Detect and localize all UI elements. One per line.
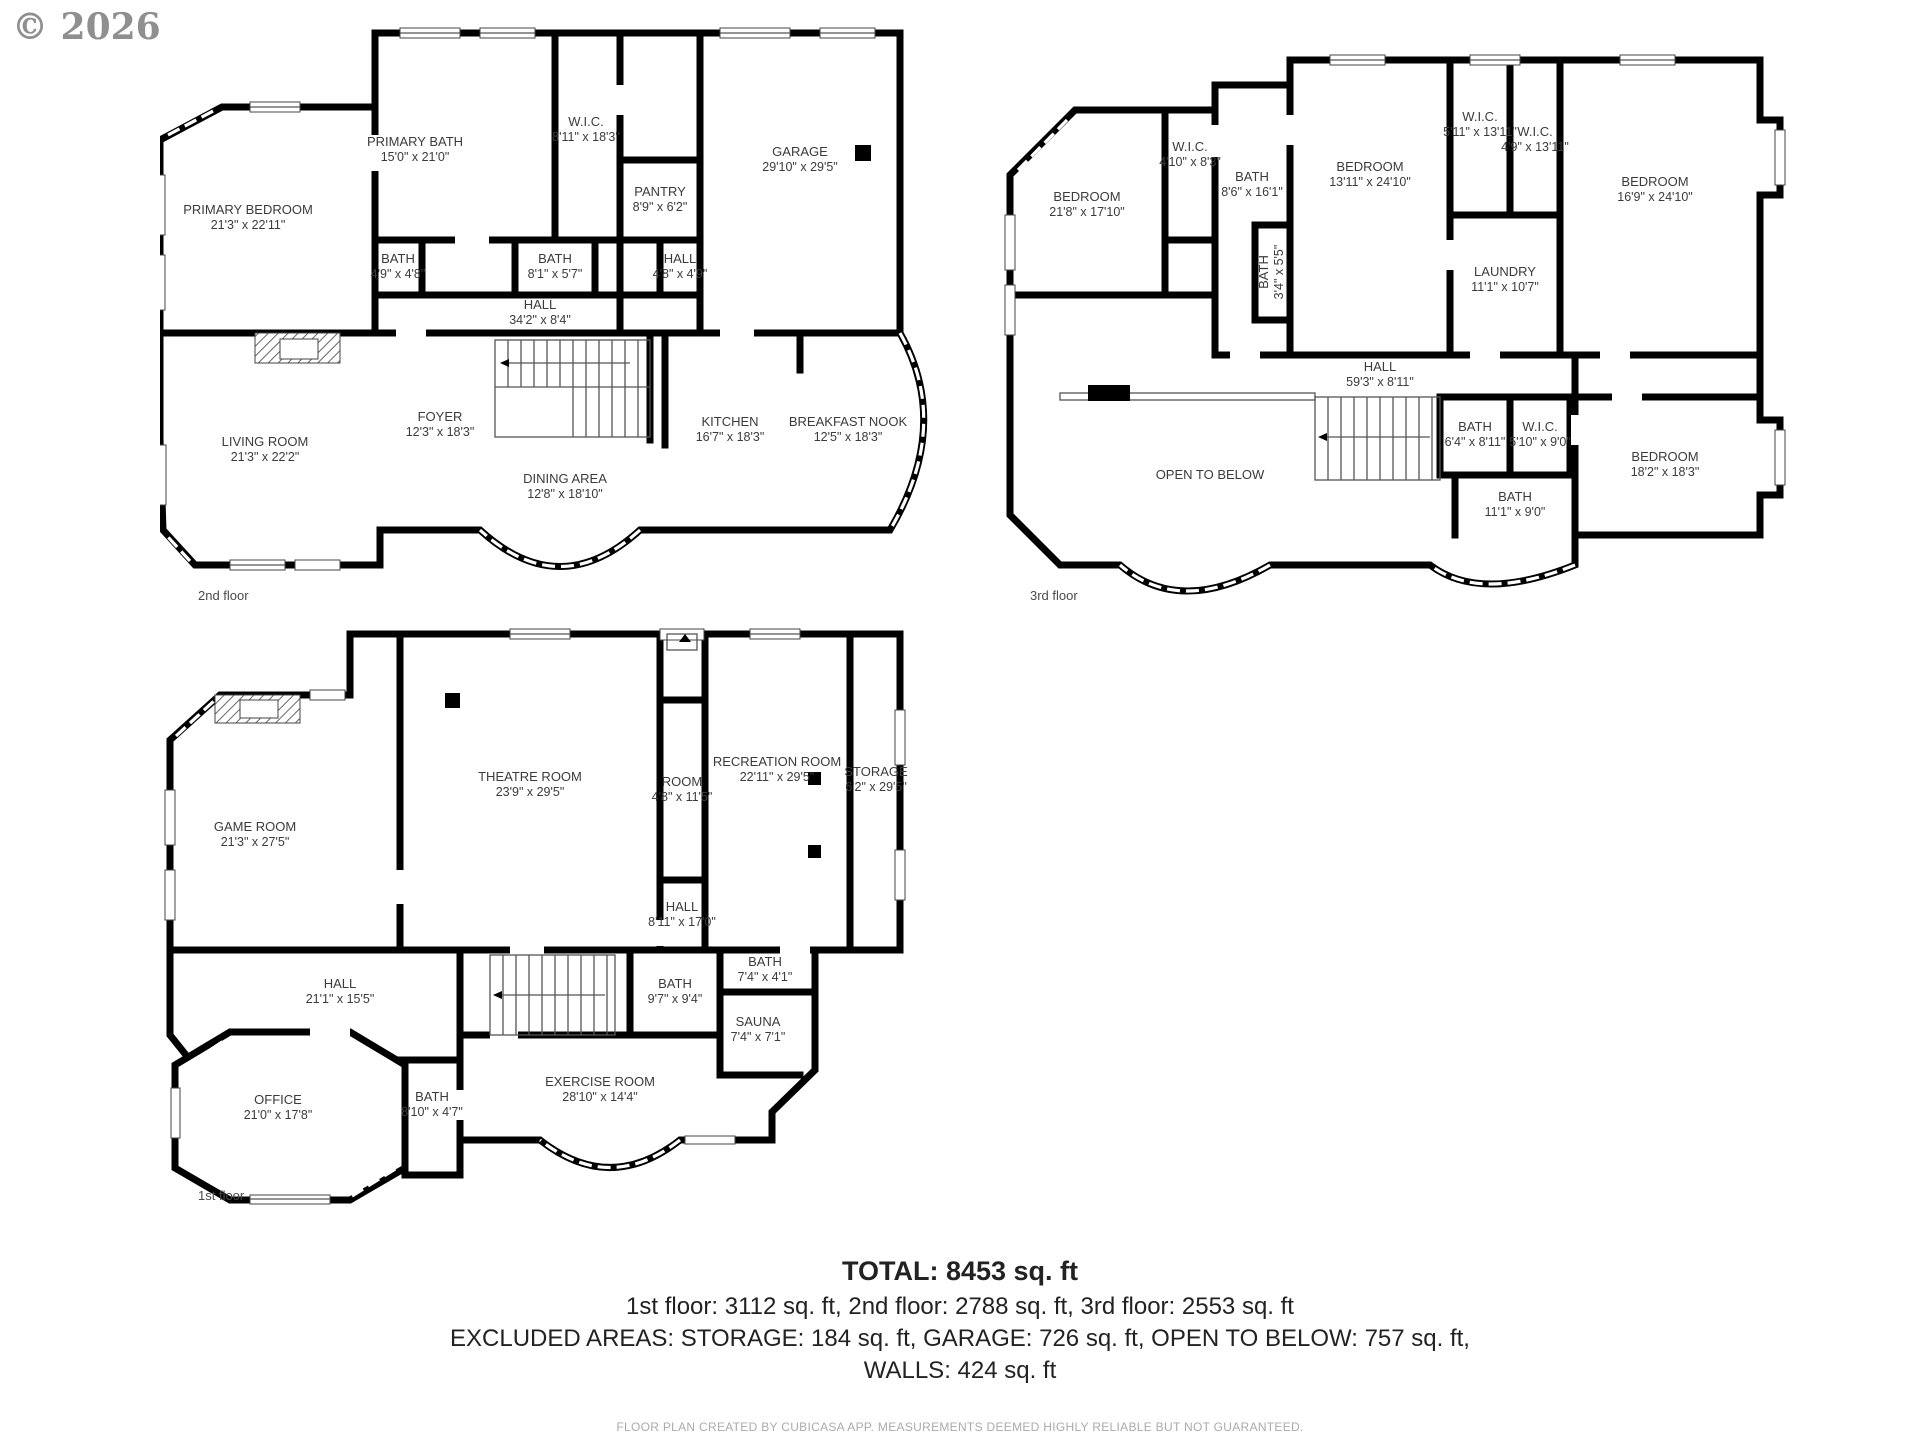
room-label: W.I.C.4'10" x 8'3" xyxy=(1159,139,1221,171)
room-label: GARAGE29'10" x 29'5" xyxy=(762,144,838,176)
room-label: THEATRE ROOM23'9" x 29'5" xyxy=(478,769,582,801)
room-label: BATH4'9" x 4'8" xyxy=(371,251,426,283)
room-label: GAME ROOM21'3" x 27'5" xyxy=(214,819,296,851)
room-label: RECREATION ROOM22'11" x 29'5" xyxy=(713,754,841,786)
room-label: BATH8'6" x 16'1" xyxy=(1221,169,1283,201)
room-label: PRIMARY BEDROOM21'3" x 22'11" xyxy=(183,202,313,234)
room-label: BATH8'10" x 4'7" xyxy=(401,1089,463,1121)
room-label: LAUNDRY11'1" x 10'7" xyxy=(1471,264,1539,296)
room-label: HALL59'3" x 8'11" xyxy=(1346,359,1414,391)
floor-plan-1st: GAME ROOM21'3" x 27'5" THEATRE ROOM23'9"… xyxy=(160,620,960,1220)
fireplace-icon xyxy=(255,333,340,363)
room-label: HALL8'11" x 17'0" xyxy=(648,899,716,931)
column-icon xyxy=(808,845,821,858)
floor-areas-line: 1st floor: 3112 sq. ft, 2nd floor: 2788 … xyxy=(0,1293,1920,1321)
room-label: KITCHEN16'7" x 18'3" xyxy=(696,414,765,446)
column-icon xyxy=(445,693,460,708)
room-label: BATH11'1" x 9'0" xyxy=(1485,489,1546,521)
room-label: BREAKFAST NOOK12'5" x 18'3" xyxy=(789,414,907,446)
room-label: W.I.C.5'10" x 9'0" xyxy=(1509,419,1571,451)
copyright-watermark: © 2026 xyxy=(12,6,161,48)
floor-tag-3rd: 3rd floor xyxy=(1030,588,1078,603)
room-label: SAUNA7'4" x 7'1" xyxy=(731,1014,786,1046)
floor-plan-3rd: BEDROOM21'8" x 17'10" W.I.C.4'10" x 8'3"… xyxy=(1000,25,1790,615)
floor-tag-1st: 1st floor xyxy=(198,1188,244,1203)
room-label: BATH6'4" x 8'11" xyxy=(1445,419,1506,451)
room-label: DINING AREA12'8" x 18'10" xyxy=(523,471,607,503)
floor-plan-3rd-drawing xyxy=(1000,25,1790,615)
room-label: BEDROOM21'8" x 17'10" xyxy=(1049,189,1125,221)
room-label: HALL4'8" x 4'9" xyxy=(653,251,708,283)
floor-tag-2nd: 2nd floor xyxy=(198,588,249,603)
credit-line: FLOOR PLAN CREATED BY CUBICASA APP. MEAS… xyxy=(0,1420,1920,1434)
room-label: BATH3'4" x 5'5" xyxy=(1256,245,1288,300)
room-label: HALL34'2" x 8'4" xyxy=(509,297,571,329)
floor-plan-1st-drawing xyxy=(160,620,960,1220)
room-label: OPEN TO BELOW xyxy=(1156,467,1265,483)
room-label: W.I.C.4'9" x 13'11" xyxy=(1501,124,1569,156)
room-label: PRIMARY BATH15'0" x 21'0" xyxy=(367,134,463,166)
room-label: EXERCISE ROOM28'10" x 14'4" xyxy=(545,1074,655,1106)
room-label: BATH7'4" x 4'1" xyxy=(738,954,793,986)
room-label: PANTRY8'9" x 6'2" xyxy=(633,184,688,216)
room-label: BATH9'7" x 9'4" xyxy=(648,976,703,1008)
room-label: W.I.C.8'11" x 18'3" xyxy=(552,114,620,146)
room-label: BATH8'1" x 5'7" xyxy=(528,251,583,283)
room-label: HALL21'1" x 15'5" xyxy=(306,976,375,1008)
walls-area-line: WALLS: 424 sq. ft xyxy=(0,1357,1920,1385)
floor-plan-2nd: PRIMARY BEDROOM21'3" x 22'11" PRIMARY BA… xyxy=(160,25,940,615)
total-area-line: TOTAL: 8453 sq. ft xyxy=(0,1256,1920,1287)
fireplace-icon xyxy=(215,695,300,723)
room-label: BEDROOM18'2" x 18'3" xyxy=(1631,449,1700,481)
room-label: ROOM4'8" x 11'5" xyxy=(652,774,713,806)
room-label: LIVING ROOM21'3" x 22'2" xyxy=(222,434,309,466)
garage-post-icon xyxy=(855,145,871,161)
excluded-areas-line: EXCLUDED AREAS: STORAGE: 184 sq. ft, GAR… xyxy=(0,1325,1920,1353)
room-label: BEDROOM13'11" x 24'10" xyxy=(1329,159,1411,191)
room-label: STORAGE6'2" x 29'5" xyxy=(844,764,907,796)
room-label: BEDROOM16'9" x 24'10" xyxy=(1617,174,1693,206)
room-label: FOYER12'3" x 18'3" xyxy=(406,409,475,441)
chimney-icon xyxy=(1088,385,1130,401)
room-label: OFFICE21'0" x 17'8" xyxy=(244,1092,313,1124)
area-summary: TOTAL: 8453 sq. ft 1st floor: 3112 sq. f… xyxy=(0,1256,1920,1389)
